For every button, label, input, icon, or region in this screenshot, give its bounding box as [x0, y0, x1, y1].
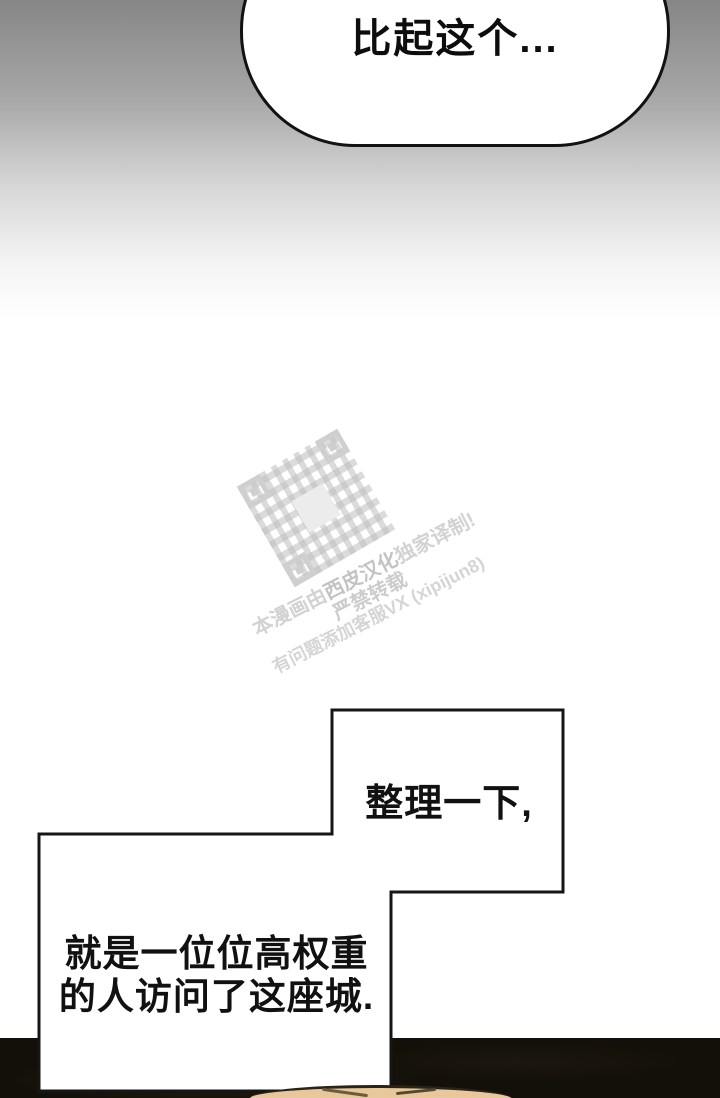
- dialogue-text-bottom-line2: 的人访问了这座城.: [42, 975, 391, 1018]
- dialogue-text-mid: 整理一下,: [335, 772, 563, 827]
- dialogue-text-bottom: 就是一位位高权重 的人访问了这座城.: [42, 932, 391, 1018]
- comic-page: 比起这个... 本漫画由西皮汉化独家译制! 严禁转载 有问题添加客服VX (xi…: [0, 0, 720, 1098]
- dialogue-text-bottom-line1: 就是一位位高权重: [42, 932, 391, 975]
